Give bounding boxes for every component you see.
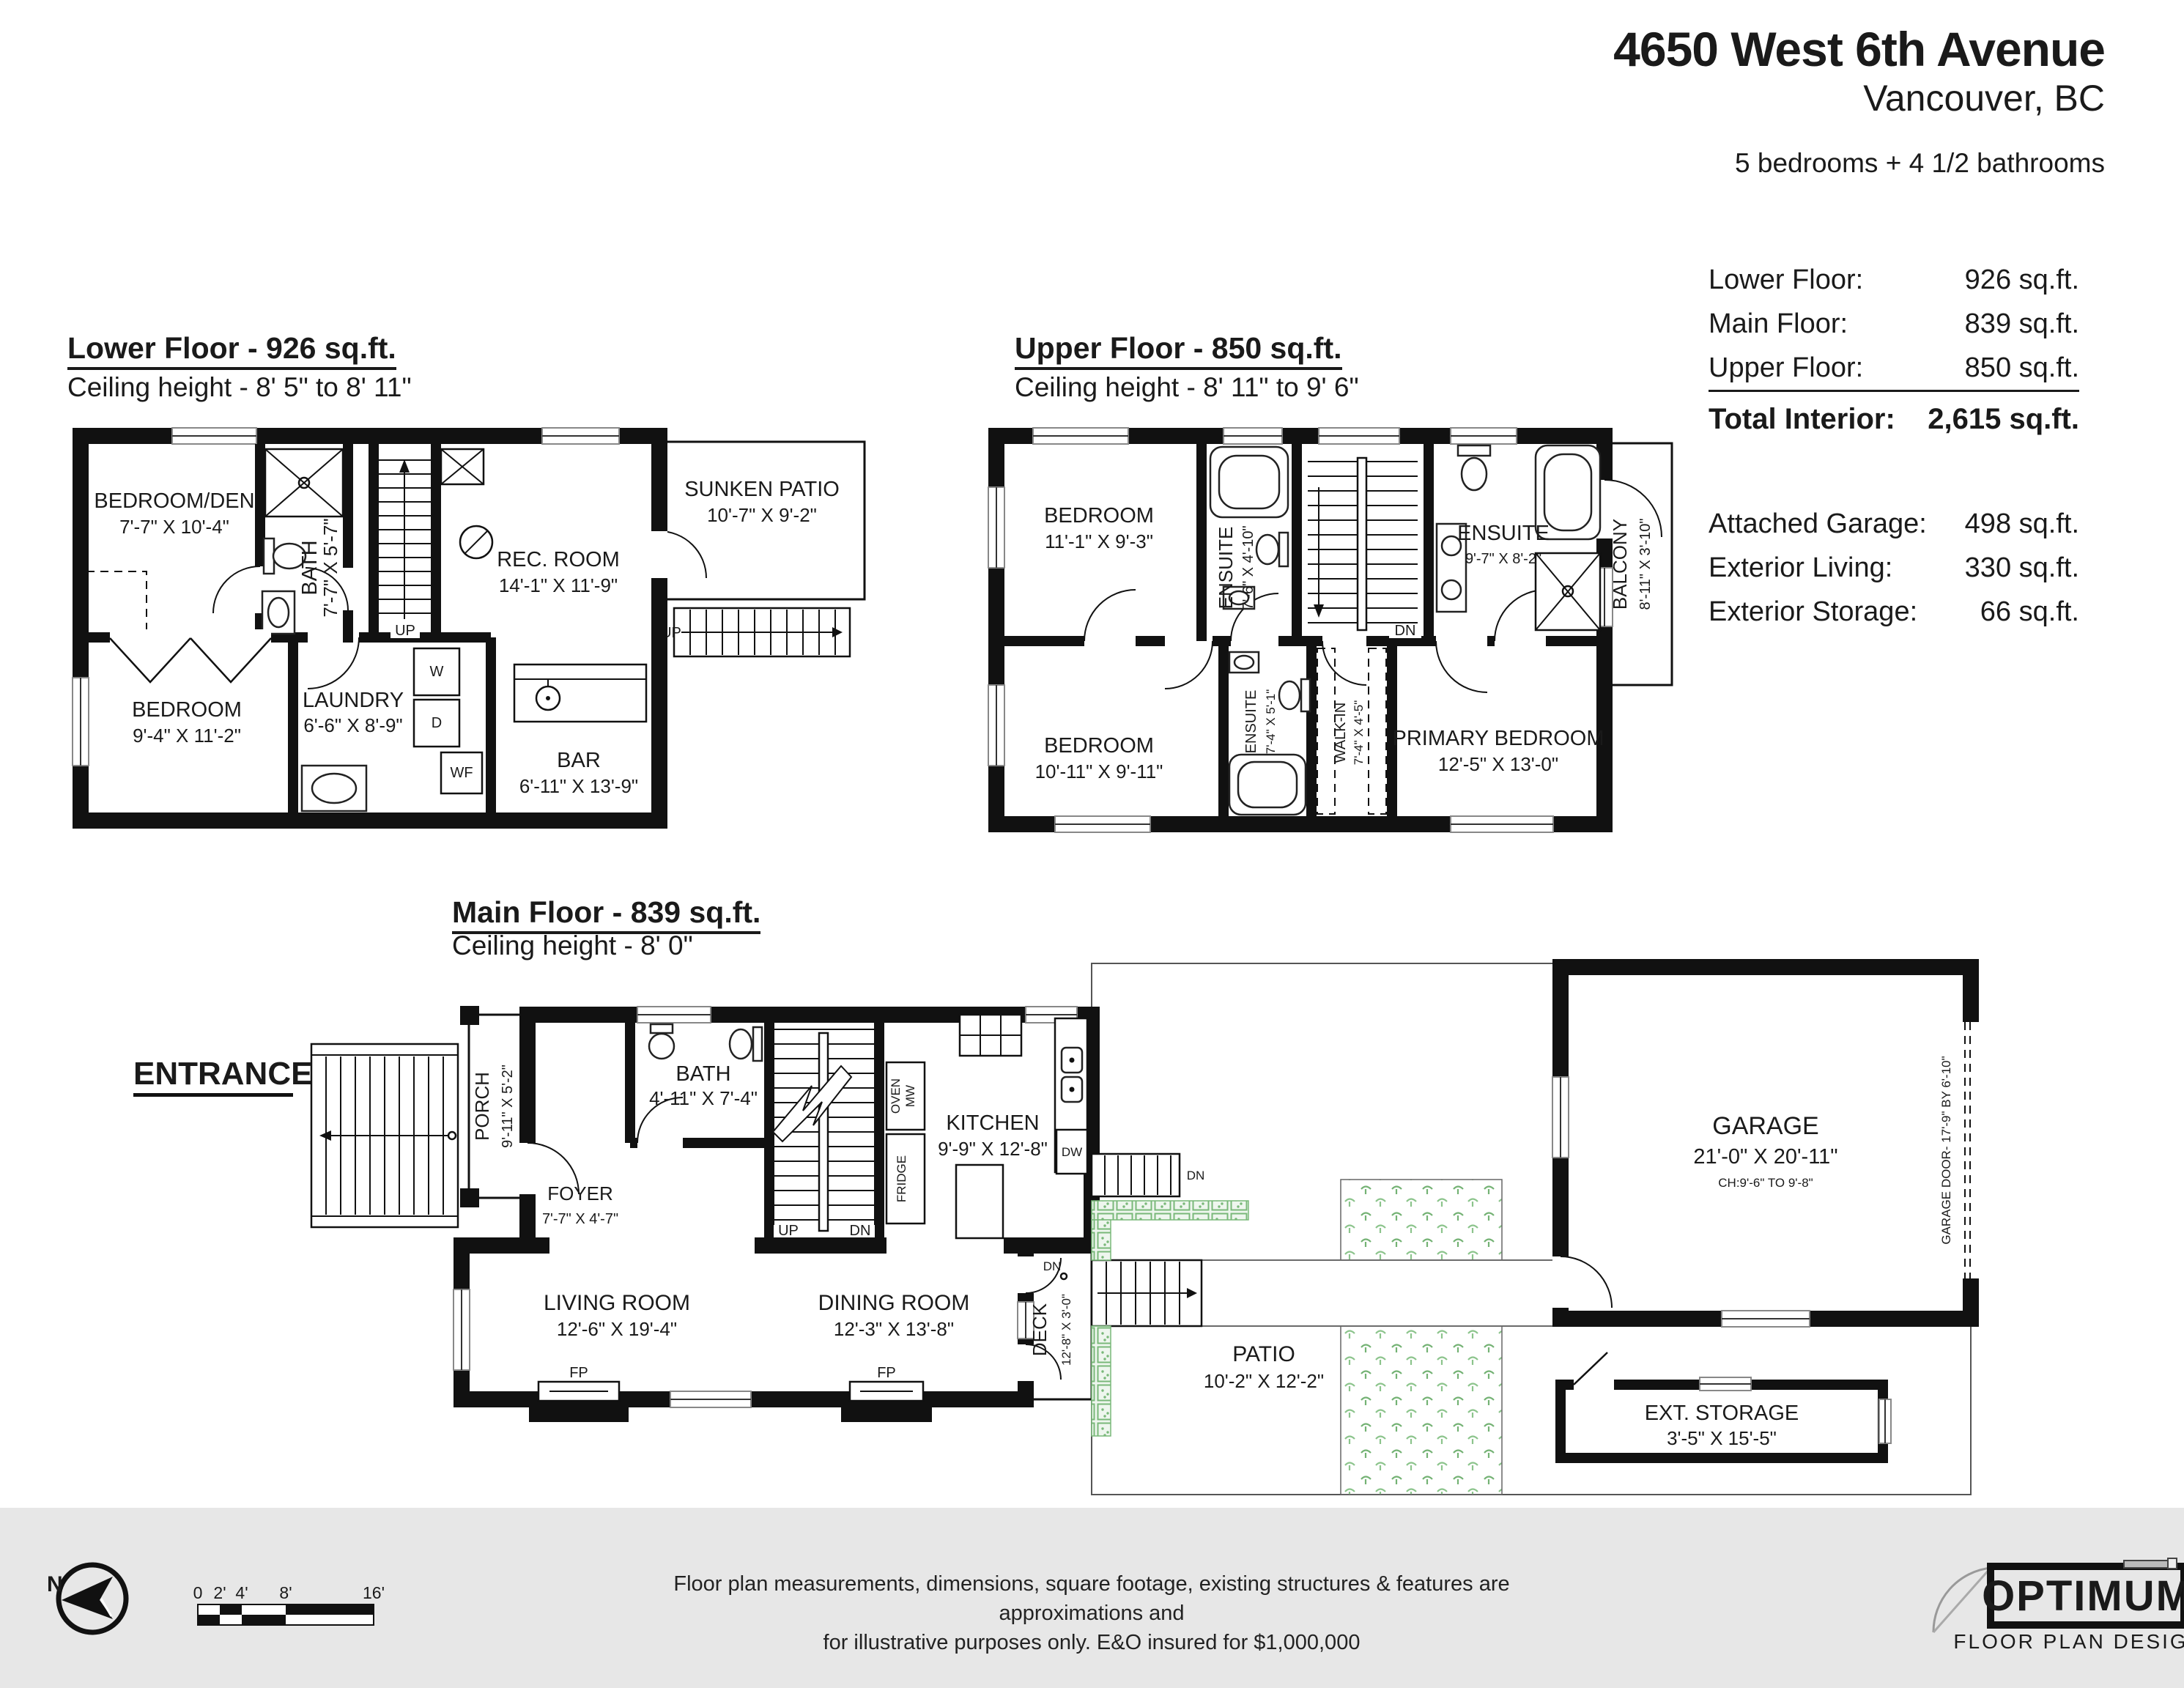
scale-bar: 0 2' 4' 8' 16'	[189, 1584, 394, 1635]
window-icon	[670, 1391, 751, 1407]
stat-value: 66 sq.ft.	[1980, 590, 2079, 634]
upper-floor-title: Upper Floor - 850 sq.ft.	[1015, 331, 1342, 366]
bed-bath-summary: 5 bedrooms + 4 1/2 bathrooms	[1613, 148, 2105, 179]
hedge-strip	[1092, 1220, 1111, 1260]
room-dims: 9'-4" X 11'-2"	[133, 725, 241, 747]
svg-text:D: D	[432, 715, 442, 731]
room-dims: 8'-11" X 3'-10"	[1637, 519, 1654, 610]
fridge-icon: FRIDGE	[886, 1134, 925, 1224]
room-name: BATH	[675, 1062, 730, 1086]
room-dims: 12'-8" X 3'-0"	[1059, 1294, 1073, 1366]
north-deck-stairs: DN	[1092, 1154, 1204, 1196]
stat-extras: Attached Garage: 498 sq.ft. Exterior Liv…	[1709, 502, 2079, 634]
window-icon	[172, 428, 256, 444]
lower-floor-ceiling: Ceiling height - 8' 5" to 8' 11"	[67, 372, 412, 403]
logo-door-leaf	[2124, 1561, 2169, 1568]
stair-dn-label: DN	[1043, 1259, 1062, 1273]
shower-icon	[265, 449, 343, 517]
room-name: GARAGE	[1712, 1112, 1818, 1140]
room-dims: 6'-11" X 13'-9"	[519, 775, 638, 797]
lower-floor-title: Lower Floor - 926 sq.ft.	[67, 331, 396, 366]
window-icon	[1055, 816, 1150, 832]
disclaimer: Floor plan measurements, dimensions, squ…	[637, 1569, 1546, 1657]
stat-value: 2,615 sq.ft.	[1928, 395, 2079, 443]
main-floor-title: Main Floor - 839 sq.ft.	[452, 895, 760, 930]
scale-tick: 4'	[235, 1584, 248, 1602]
window-icon	[1700, 1377, 1751, 1391]
stat-label: Attached Garage:	[1709, 502, 1927, 546]
room-name: ENSUITE	[1457, 522, 1550, 545]
svg-text:WF: WF	[450, 765, 473, 781]
stair-dn-label: DN	[1187, 1169, 1205, 1182]
cooktop-icon	[960, 1015, 1021, 1056]
window-icon	[637, 1007, 711, 1023]
main-room-garage: GARAGE DOOR- 17'-9" BY 6'-10" GARAGE 21'…	[1552, 967, 1979, 1327]
window-icon	[1033, 428, 1128, 444]
patio-planting	[1341, 1326, 1502, 1495]
room-dims: 12'-3" X 13'-8"	[834, 1318, 954, 1340]
stat-row-total: Total Interior: 2,615 sq.ft.	[1709, 395, 2079, 443]
stat-row-ext-storage: Exterior Storage: 66 sq.ft.	[1709, 590, 2079, 634]
svg-text:DW: DW	[1062, 1145, 1082, 1159]
room-name: PORCH	[471, 1072, 493, 1141]
upper-room-balcony: BALCONY 8'-11" X 3'-10"	[1604, 443, 1672, 685]
scale-tick: 8'	[279, 1584, 292, 1602]
stat-row-ext-living: Exterior Living: 330 sq.ft.	[1709, 546, 2079, 590]
room-dims: 11'-1" X 9'-3"	[1045, 530, 1153, 552]
stat-label: Main Floor:	[1709, 302, 1848, 346]
room-dims: 9'-9" X 12'-8"	[938, 1138, 1048, 1160]
wine-fridge-icon: WF	[441, 752, 482, 793]
bar-counter	[514, 665, 646, 722]
window-icon	[542, 428, 619, 444]
stair-up-label: UP	[395, 623, 415, 639]
door-gap	[637, 1135, 683, 1151]
lower-room-sunken-patio: UP SUNKEN PATIO 10'-7" X 9'-2"	[659, 442, 865, 656]
svg-text:FRIDGE: FRIDGE	[895, 1155, 908, 1202]
room-name: KITCHEN	[946, 1111, 1039, 1135]
room-name: BEDROOM/DEN	[94, 489, 254, 513]
logo-subtitle: FLOOR PLAN DESIGNS	[1953, 1630, 2184, 1653]
garage-door-label: GARAGE DOOR- 17'-9" BY 6'-10"	[1939, 1056, 1953, 1244]
stat-value: 839 sq.ft.	[1965, 302, 2079, 346]
stat-value: 498 sq.ft.	[1965, 502, 2079, 546]
deck-stairs	[1092, 1260, 1202, 1326]
room-name: LIVING ROOM	[544, 1291, 690, 1315]
window-icon	[988, 487, 1004, 568]
washer-icon: W	[414, 648, 459, 695]
toilet-icon	[1279, 679, 1310, 711]
dryer-icon: D	[414, 700, 459, 747]
stat-label: Upper Floor:	[1709, 346, 1863, 390]
stat-label: Lower Floor:	[1709, 258, 1863, 302]
window-icon	[1451, 816, 1553, 832]
room-name: DINING ROOM	[818, 1291, 970, 1315]
stair-dn-label: DN	[850, 1223, 871, 1239]
room-dims: 4'-11" X 7'-4"	[649, 1087, 758, 1109]
disclaimer-line1: Floor plan measurements, dimensions, squ…	[637, 1569, 1546, 1628]
main-area-patio: PATIO 10'-2" X 12'-2"	[1204, 1180, 1502, 1495]
window-icon	[73, 678, 89, 766]
room-name: DECK	[1029, 1303, 1051, 1356]
room-dims: 12'-6" X 19'-4"	[557, 1318, 677, 1340]
svg-text:FP: FP	[569, 1365, 588, 1381]
hot-water-tank-icon	[460, 526, 492, 558]
room-name: EXT. STORAGE	[1645, 1402, 1799, 1425]
room-dims: 7'-7" X 4'-7"	[542, 1211, 618, 1227]
room-dims: 7'-4" X 5'-1"	[1264, 689, 1278, 755]
room-dims: 10'-7" X 9'-2"	[707, 504, 817, 526]
entrance-label: ENTRANCE	[133, 1056, 312, 1097]
window-icon	[454, 1289, 470, 1370]
room-name: FOYER	[547, 1182, 613, 1204]
room-ceiling: CH:9'-6" TO 9'-8"	[1718, 1176, 1813, 1190]
stat-value: 330 sq.ft.	[1965, 546, 2079, 590]
room-dims: 10'-2" X 12'-2"	[1204, 1370, 1324, 1392]
room-dims: 7'-7" X 10'-4"	[119, 516, 229, 538]
window-icon	[1224, 428, 1282, 444]
oven-microwave-icon: OVEN MW	[886, 1062, 925, 1130]
room-name: REC. ROOM	[497, 548, 620, 571]
disclaimer-line2: for illustrative purposes only. E&O insu…	[637, 1628, 1546, 1657]
stair-up-label: UP	[778, 1223, 799, 1239]
stat-label: Exterior Living:	[1709, 546, 1892, 590]
room-name: ENSUITE	[1243, 690, 1259, 754]
window-icon	[988, 685, 1004, 766]
door-gap	[651, 531, 667, 578]
room-name: WALK-IN	[1333, 703, 1349, 763]
room-dims: 14'-1" X 11'-9"	[499, 574, 618, 596]
hedge-strip	[1092, 1201, 1248, 1220]
room-dims: 21'-0" X 20'-11"	[1693, 1145, 1837, 1169]
room-dims: 10'-11" X 9'-11"	[1035, 760, 1163, 782]
room-name: ENSUITE	[1215, 527, 1237, 610]
stat-row-main: Main Floor: 839 sq.ft.	[1709, 302, 2079, 346]
main-room-porch: PORCH 9'-11" X 5'-2"	[460, 1006, 528, 1207]
stat-label: Total Interior:	[1709, 395, 1895, 443]
toilet-icon	[1256, 533, 1288, 566]
sink-icon	[1229, 652, 1259, 673]
stat-value: 926 sq.ft.	[1965, 258, 2079, 302]
stat-row-lower: Lower Floor: 926 sq.ft.	[1709, 258, 2079, 302]
bathtub-icon	[1210, 447, 1288, 517]
room-dims: 6'-6" X 8'-9"	[303, 714, 402, 736]
stat-row-garage: Attached Garage: 498 sq.ft.	[1709, 502, 2079, 546]
closet-icon	[441, 449, 484, 484]
room-dims: 7'-4" X 4'-5"	[1352, 700, 1366, 766]
room-name: BATH	[298, 540, 322, 595]
room-name: SUNKEN PATIO	[684, 478, 840, 501]
door-gap	[1018, 1256, 1034, 1293]
room-dims: 7'-6" X 4'-10"	[1240, 525, 1256, 610]
room-name: PRIMARY BEDROOM	[1393, 727, 1604, 750]
window-icon	[1319, 428, 1399, 444]
stair-dn-label: DN	[1395, 623, 1416, 639]
stat-label: Exterior Storage:	[1709, 590, 1917, 634]
window-icon	[1451, 428, 1517, 444]
toilet-icon	[730, 1027, 762, 1061]
address-line2: Vancouver, BC	[1613, 76, 2105, 120]
room-name: BEDROOM	[1044, 504, 1154, 527]
scale-bar-cells	[198, 1604, 374, 1625]
room-dims: 7'-7" X 5'-7"	[319, 518, 341, 617]
svg-text:ENTRANCE: ENTRANCE	[133, 1056, 312, 1092]
room-name: BAR	[557, 749, 601, 772]
svg-text:FP: FP	[877, 1365, 896, 1381]
bathtub-icon	[1229, 755, 1306, 815]
main-room-storage: EXT. STORAGE 3'-5" X 15'-5"	[1561, 1352, 1891, 1458]
room-dims: 9'-7" X 8'-2"	[1465, 551, 1541, 567]
room-name: PATIO	[1232, 1342, 1295, 1366]
door-gap	[1552, 1256, 1569, 1308]
island-icon	[956, 1165, 1003, 1238]
compass-icon: N	[45, 1552, 133, 1647]
room-name: BEDROOM	[132, 698, 242, 722]
scale-tick: 16'	[363, 1584, 385, 1602]
window-icon	[1552, 1077, 1569, 1158]
stat-row-upper: Upper Floor: 850 sq.ft.	[1709, 346, 2079, 392]
room-dims: 12'-5" X 13'-0"	[1438, 753, 1558, 775]
area-stats: Lower Floor: 926 sq.ft. Main Floor: 839 …	[1709, 258, 2079, 634]
shower-icon	[1536, 553, 1600, 630]
sink-icon	[262, 591, 295, 634]
optimum-logo: OPTIMUM FLOOR PLAN DESIGNS	[1918, 1558, 2184, 1660]
window-icon	[1722, 1311, 1810, 1327]
upper-floor-ceiling: Ceiling height - 8' 11" to 9' 6"	[1015, 372, 1359, 403]
upper-floor-plan: BALCONY 8'-11" X 3'-10"	[982, 421, 1678, 846]
svg-text:W: W	[430, 664, 444, 680]
laundry-sink-icon	[302, 766, 366, 811]
main-floor-plan: ENTRANCE DN PORCH 9'-11" X 5'-2"	[125, 945, 2000, 1509]
room-name: LAUNDRY	[303, 689, 404, 712]
north-label: N	[47, 1572, 63, 1596]
lower-floor-plan: UP SUNKEN PATIO 10'-7" X 9'-2"	[66, 421, 886, 843]
logo-title: OPTIMUM	[1982, 1572, 2184, 1620]
hedge-strip	[1092, 1326, 1111, 1436]
patio-planting	[1341, 1180, 1502, 1260]
door-gap	[519, 1143, 536, 1194]
scale-tick: 0	[193, 1584, 203, 1602]
address-line1: 4650 West 6th Avenue	[1613, 22, 2105, 76]
window-icon	[1879, 1399, 1891, 1443]
room-dims: 3'-5" X 15'-5"	[1667, 1427, 1777, 1449]
dishwasher-icon: DW	[1056, 1130, 1087, 1174]
svg-text:OVEN: OVEN	[889, 1078, 903, 1114]
sink-icon	[649, 1024, 674, 1059]
header: 4650 West 6th Avenue Vancouver, BC 5 bed…	[1613, 22, 2105, 179]
room-dims: 9'-11" X 5'-2"	[500, 1065, 516, 1148]
room-name: BEDROOM	[1044, 734, 1154, 758]
svg-text:MW: MW	[903, 1085, 917, 1107]
scale-tick: 2'	[213, 1584, 226, 1602]
floor-plan-sheet: 4650 West 6th Avenue Vancouver, BC 5 bed…	[0, 0, 2184, 1688]
stat-value: 850 sq.ft.	[1965, 346, 2079, 390]
